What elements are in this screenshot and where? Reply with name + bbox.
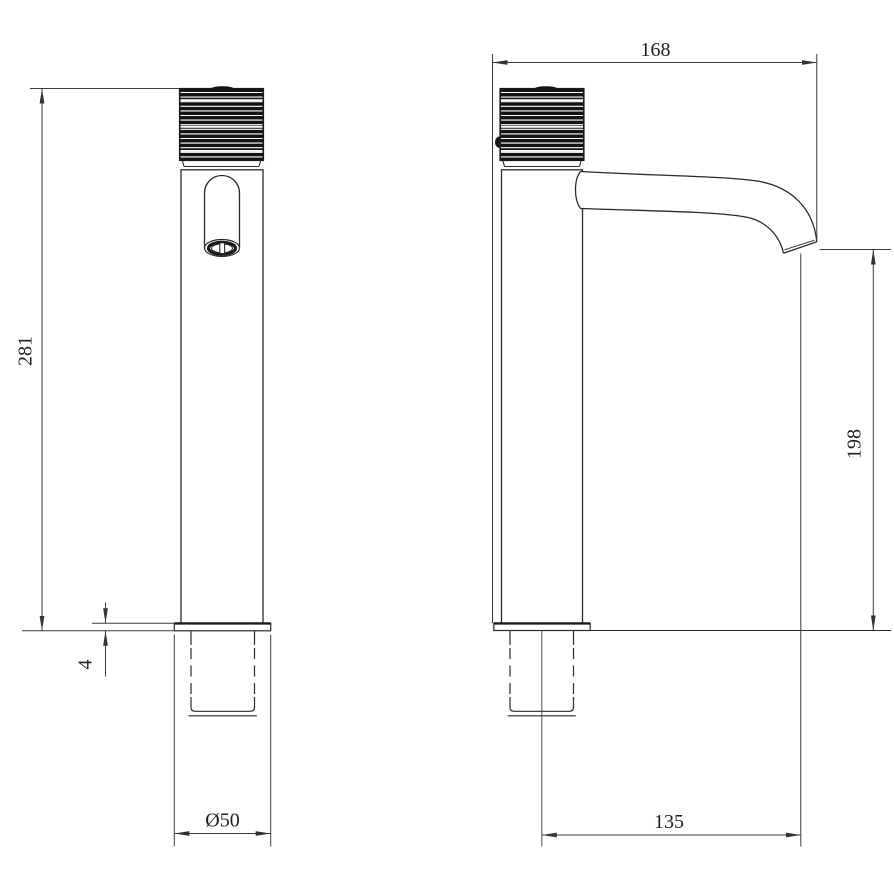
neck-ring-side bbox=[503, 161, 581, 167]
base-plate-front bbox=[174, 623, 270, 630]
handle-set-screw-bump bbox=[495, 137, 500, 148]
dim-label-overall-depth: 168 bbox=[641, 39, 671, 61]
dim-label-outlet-height: 198 bbox=[844, 429, 866, 459]
handle-top-cap bbox=[211, 86, 234, 91]
spout-front-window bbox=[205, 176, 240, 257]
dim-label-spout-reach: 135 bbox=[654, 811, 684, 833]
side-view bbox=[494, 86, 891, 716]
handle-top-cap-side bbox=[535, 86, 558, 91]
neck-ring-front bbox=[183, 161, 261, 167]
handle-front bbox=[180, 86, 264, 160]
dim-base-diameter: Ø50 bbox=[174, 635, 270, 847]
technical-drawing-sheet: 281 4 Ø50 168 198 bbox=[0, 0, 894, 894]
dim-outlet-height: 198 bbox=[820, 250, 892, 631]
dim-total-height: 281 bbox=[15, 89, 180, 631]
dim-label-plate-thickness: 4 bbox=[75, 660, 97, 670]
spout-side bbox=[575, 172, 816, 254]
dim-label-base-diameter: Ø50 bbox=[205, 810, 239, 832]
faucet-dimension-drawing: 281 4 Ø50 168 198 bbox=[0, 0, 894, 894]
shank-end-lip-front bbox=[191, 697, 255, 711]
dim-label-total-height: 281 bbox=[15, 336, 37, 366]
front-view bbox=[174, 86, 270, 716]
aerator-slot bbox=[220, 243, 225, 254]
handle-knurling-front bbox=[181, 93, 263, 157]
handle-knurling-side bbox=[501, 93, 583, 157]
dim-base-plate-thickness: 4 bbox=[75, 603, 175, 677]
handle-side bbox=[495, 86, 584, 160]
faucet-body-side bbox=[502, 170, 583, 624]
base-plate-side bbox=[494, 623, 891, 630]
threaded-shank-front bbox=[189, 631, 257, 716]
